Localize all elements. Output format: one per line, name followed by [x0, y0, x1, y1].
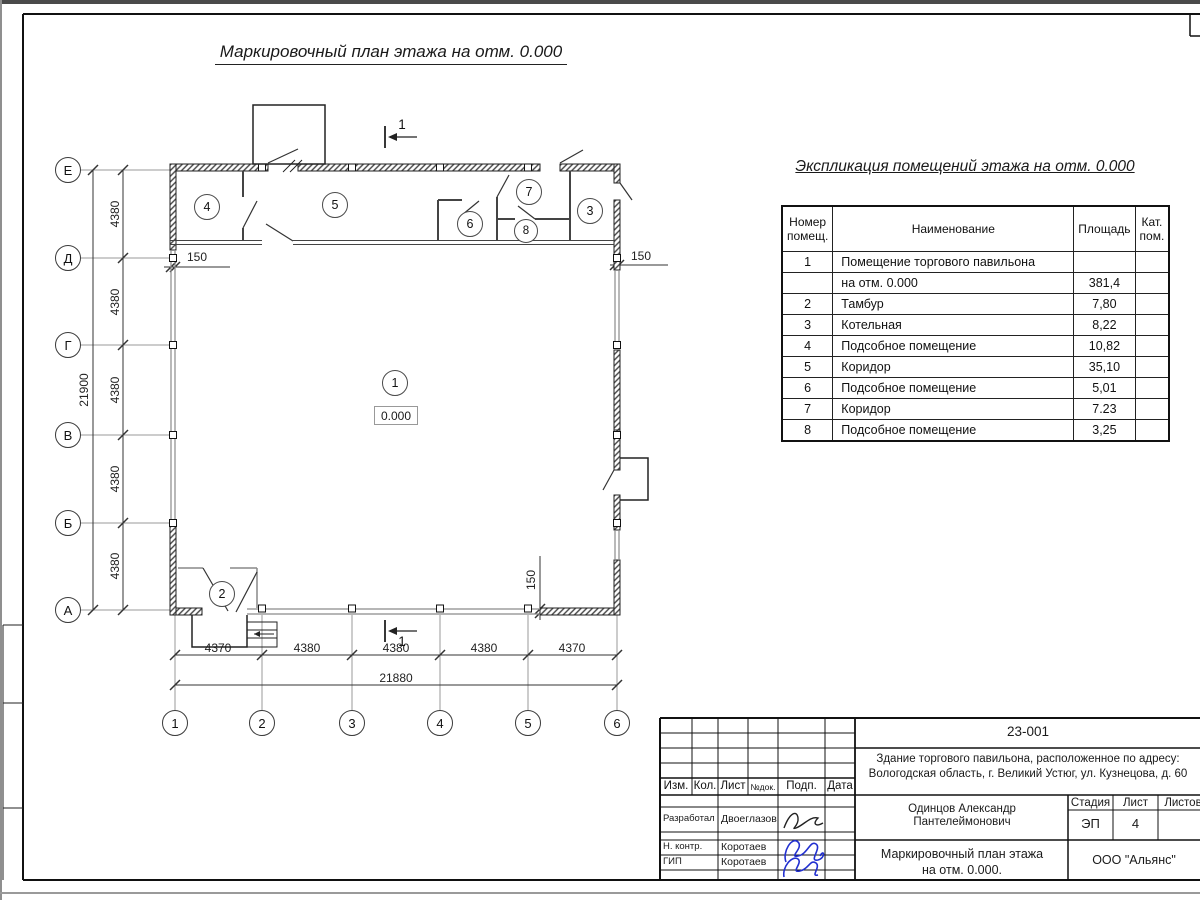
cell-name: на отм. 0.000 [833, 273, 1074, 294]
axis-bubble-6: 6 [604, 710, 630, 736]
door-swings [203, 149, 632, 612]
tb-role-ncontrol: Н. контр. [663, 842, 702, 853]
table-row: на отм. 0.000381,4 [782, 273, 1169, 294]
table-row: 8Подсобное помещение3,25 [782, 420, 1169, 442]
sheet-frame [23, 14, 1200, 880]
axis-bubble-G: Г [55, 332, 81, 358]
dim-left-total: 21900 [64, 370, 104, 410]
axis-bubble-4: 4 [427, 710, 453, 736]
cell-name: Коридор [833, 399, 1074, 420]
cell-category [1135, 399, 1169, 420]
signature-ncontrol [785, 841, 823, 862]
tb-sheet-value: 4 [1113, 817, 1158, 832]
room-bubble-2: 2 [209, 581, 235, 607]
table-row: 3Котельная8,22 [782, 315, 1169, 336]
table-row: 6Подсобное помещение5,01 [782, 378, 1169, 399]
cell-name: Подсобное помещение [833, 420, 1074, 442]
tb-role-developer: Разработал [663, 814, 715, 825]
dim-offset-left: 150 [179, 250, 215, 264]
tb-col-kol: Кол. [692, 780, 718, 793]
exposition-title: Экспликация помещений этажа на отм. 0.00… [790, 158, 1140, 176]
table-row: 1Помещение торгового павильона [782, 252, 1169, 273]
room-bubble-4: 4 [194, 194, 220, 220]
tb-sheet-label: Лист [1113, 797, 1158, 810]
axis-lines [81, 170, 617, 710]
signature-developer [784, 813, 823, 828]
cell-category [1135, 420, 1169, 442]
signature-gip [784, 858, 818, 877]
cell-name: Котельная [833, 315, 1074, 336]
cell-category [1135, 273, 1169, 294]
margin-boxes [3, 625, 23, 880]
chimney [253, 105, 325, 172]
cell-area: 5,01 [1074, 378, 1135, 399]
tb-plan-name-line1: Маркировочный план этажа [858, 847, 1066, 861]
axis-bubble-B: Б [55, 510, 81, 536]
plan-title: Маркировочный план этажа на отм. 0.000 [215, 42, 567, 65]
exposition-table-body: 1Помещение торгового павильона на отм. 0… [782, 252, 1169, 442]
cell-area: 7.23 [1074, 399, 1135, 420]
cell-category [1135, 336, 1169, 357]
dim-left-1: 4380 [95, 194, 135, 234]
cell-number: 5 [782, 357, 833, 378]
cell-area: 381,4 [1074, 273, 1135, 294]
cell-number: 7 [782, 399, 833, 420]
cell-category [1135, 294, 1169, 315]
drawing-sheet: Маркировочный план этажа на отм. 0.000 Э… [0, 0, 1200, 900]
col-header-name: Наименование [833, 206, 1074, 252]
cell-number: 3 [782, 315, 833, 336]
cell-number [782, 273, 833, 294]
cell-area: 7,80 [1074, 294, 1135, 315]
tb-company: ООО "Альянс" [1068, 853, 1200, 867]
dim-bottom-2: 4380 [277, 641, 337, 655]
axis-bubble-2: 2 [249, 710, 275, 736]
cell-area: 8,22 [1074, 315, 1135, 336]
table-row: 7Коридор7.23 [782, 399, 1169, 420]
dim-offset-right: 150 [623, 249, 659, 263]
cell-number: 1 [782, 252, 833, 273]
dim-bottom-1: 4370 [188, 641, 248, 655]
tb-address-line2: Вологодская область, г. Великий Устюг, у… [858, 768, 1198, 781]
room-bubble-8: 8 [514, 219, 538, 243]
axis-bubble-3: 3 [339, 710, 365, 736]
cell-area [1074, 252, 1135, 273]
tb-col-ndok: №док. [748, 783, 778, 793]
cell-category [1135, 357, 1169, 378]
side-porch [620, 458, 648, 500]
table-header-row: Номер помещ. Наименование Площадь Кат. п… [782, 206, 1169, 252]
cell-name: Коридор [833, 357, 1074, 378]
dim-left-4: 4380 [95, 459, 135, 499]
sheet-edge-left [0, 0, 2, 900]
elevation-mark: 0.000 [374, 406, 418, 425]
room-bubble-3: 3 [577, 198, 603, 224]
cell-category [1135, 252, 1169, 273]
axis-bubble-1: 1 [162, 710, 188, 736]
tb-role-gip: ГИП [663, 857, 682, 868]
tb-name-ncontrol: Коротаев [721, 841, 766, 853]
dim-bottom-5: 4370 [542, 641, 602, 655]
cell-name: Помещение торгового павильона [833, 252, 1074, 273]
dimension-lines [88, 165, 668, 690]
room-bubble-1: 1 [382, 370, 408, 396]
tb-stage-label: Стадия [1068, 797, 1113, 810]
cell-name: Тамбур [833, 294, 1074, 315]
tb-plan-name-line2: на отм. 0.000. [858, 863, 1066, 877]
dim-left-5: 4380 [95, 546, 135, 586]
cell-number: 2 [782, 294, 833, 315]
tb-col-podp: Подп. [778, 780, 825, 793]
table-row: 4Подсобное помещение10,82 [782, 336, 1169, 357]
axis-bubble-V: В [55, 422, 81, 448]
section-label-top: 1 [394, 117, 410, 132]
tb-col-list: Лист [718, 780, 748, 793]
cell-number: 8 [782, 420, 833, 442]
dim-bottom-3: 4380 [366, 641, 426, 655]
room-bubble-5: 5 [322, 192, 348, 218]
table-row: 2Тамбур7,80 [782, 294, 1169, 315]
light-wall-lines [171, 250, 619, 614]
tb-address-line1: Здание торгового павильона, расположенно… [858, 753, 1198, 766]
tb-name-gip: Коротаев [721, 856, 766, 868]
tb-col-data: Дата [825, 780, 855, 793]
cell-number: 4 [782, 336, 833, 357]
cell-number: 6 [782, 378, 833, 399]
sheet-edge-top [0, 0, 1200, 4]
table-row: 5Коридор35,10 [782, 357, 1169, 378]
col-header-number: Номер помещ. [782, 206, 833, 252]
tb-col-izm: Изм. [660, 780, 692, 793]
signatures [784, 813, 824, 877]
axis-bubble-A: А [55, 597, 81, 623]
cell-name: Подсобное помещение [833, 378, 1074, 399]
cell-area: 10,82 [1074, 336, 1135, 357]
exposition-table: Номер помещ. Наименование Площадь Кат. п… [781, 205, 1170, 442]
room-bubble-7: 7 [516, 179, 542, 205]
axis-bubble-E: Е [55, 157, 81, 183]
dim-bottom-total: 21880 [366, 671, 426, 685]
cell-area: 35,10 [1074, 357, 1135, 378]
cell-category [1135, 378, 1169, 399]
tb-name-developer: Двоеглазов [721, 813, 777, 825]
entrance-steps [247, 622, 277, 647]
tb-sheets-label: Листов [1158, 797, 1200, 810]
tb-person: Одинцов Александр Пантелеймонович [858, 803, 1066, 829]
dim-bottom-4: 4380 [454, 641, 514, 655]
room-bubble-6: 6 [457, 211, 483, 237]
col-header-area: Площадь [1074, 206, 1135, 252]
tb-stage-value: ЭП [1068, 817, 1113, 832]
tb-doc-number: 23-001 [856, 724, 1200, 740]
dim-left-2: 4380 [95, 282, 135, 322]
axis-bubble-D: Д [55, 245, 81, 271]
col-header-category: Кат. пом. [1135, 206, 1169, 252]
dim-offset-bottom: 150 [511, 560, 551, 600]
cell-category [1135, 315, 1169, 336]
axis-bubble-5: 5 [515, 710, 541, 736]
sheet-edge-bottom [0, 892, 1200, 894]
cell-area: 3,25 [1074, 420, 1135, 442]
cell-name: Подсобное помещение [833, 336, 1074, 357]
